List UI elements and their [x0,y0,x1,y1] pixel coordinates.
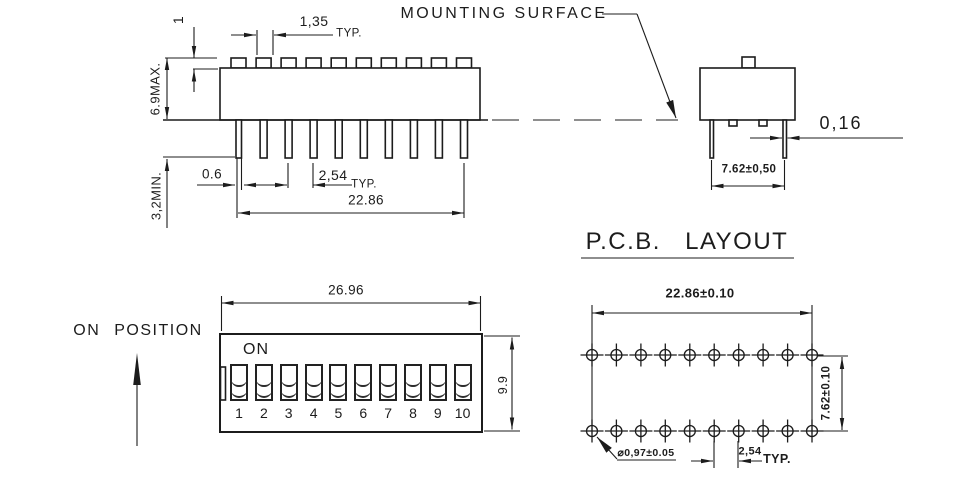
actuator-bump [306,58,321,68]
end-view-leg [710,120,714,158]
end-view-standoff [729,120,737,126]
front-view-left-notch [221,367,226,400]
pcb-hole [727,420,750,443]
end-view-leg [783,120,787,158]
dim-overall-width [222,296,481,331]
technical-drawing-canvas: 12345678910 1 1,35 TYP. 6.9MAX. 3,2MIN. … [0,0,960,488]
on-position-arrow [133,353,141,446]
actuator-bump [331,58,346,68]
pcb-layout [581,258,849,468]
pcb-hole [727,344,750,367]
pcb-hole [776,420,799,443]
pcb-hole [605,344,628,367]
side-view-actuators [231,58,472,68]
pcb-hole [581,344,604,367]
pcb-hole [752,344,775,367]
dim-row-spacing [818,356,848,431]
dim-overall-height [484,336,520,431]
hole-diameter-leader [597,437,676,460]
pcb-hole [703,344,726,367]
front-view [133,296,520,446]
actuator-bump [231,58,246,68]
side-view-pin [385,120,392,158]
actuator-bump [381,58,396,68]
side-view-pin [435,120,442,158]
side-view-pin [360,120,367,158]
actuator-bump [457,58,472,68]
mounting-surface-leader [602,14,676,118]
pcb-hole [629,420,652,443]
side-view-pin [335,120,342,158]
pcb-hole [605,420,628,443]
pcb-hole [703,420,726,443]
pcb-hole [654,344,677,367]
pcb-hole [581,420,604,443]
dim-pin-pitch [288,163,352,188]
pcb-hole [752,420,775,443]
end-view-actuator [742,57,755,68]
dim-actuator-width [231,30,333,55]
side-view [163,27,488,228]
pcb-holes [581,344,824,443]
actuator-bump [356,58,371,68]
pcb-hole [678,420,701,443]
pcb-hole [654,420,677,443]
dim-hole-span [592,305,812,434]
drawing-linework [0,0,960,488]
pcb-hole [678,344,701,367]
actuator-bump [431,58,446,68]
actuator-bump [281,58,296,68]
dim-hole-pitch [691,441,762,468]
end-view-body [700,68,795,120]
side-view-pin [461,120,468,158]
actuator-bump [406,58,421,68]
pcb-hole [629,344,652,367]
end-view [492,14,903,190]
end-view-standoff [759,120,767,126]
pcb-hole [776,344,799,367]
side-view-pin [260,120,267,158]
side-view-pin [410,120,417,158]
side-view-pin [236,120,242,158]
side-view-pin [285,120,292,158]
side-view-pins [236,120,468,158]
side-view-pin [310,120,317,158]
side-view-body [220,68,480,120]
front-view-body [220,334,482,432]
actuator-bump [256,58,271,68]
pcb-hole [801,344,824,367]
